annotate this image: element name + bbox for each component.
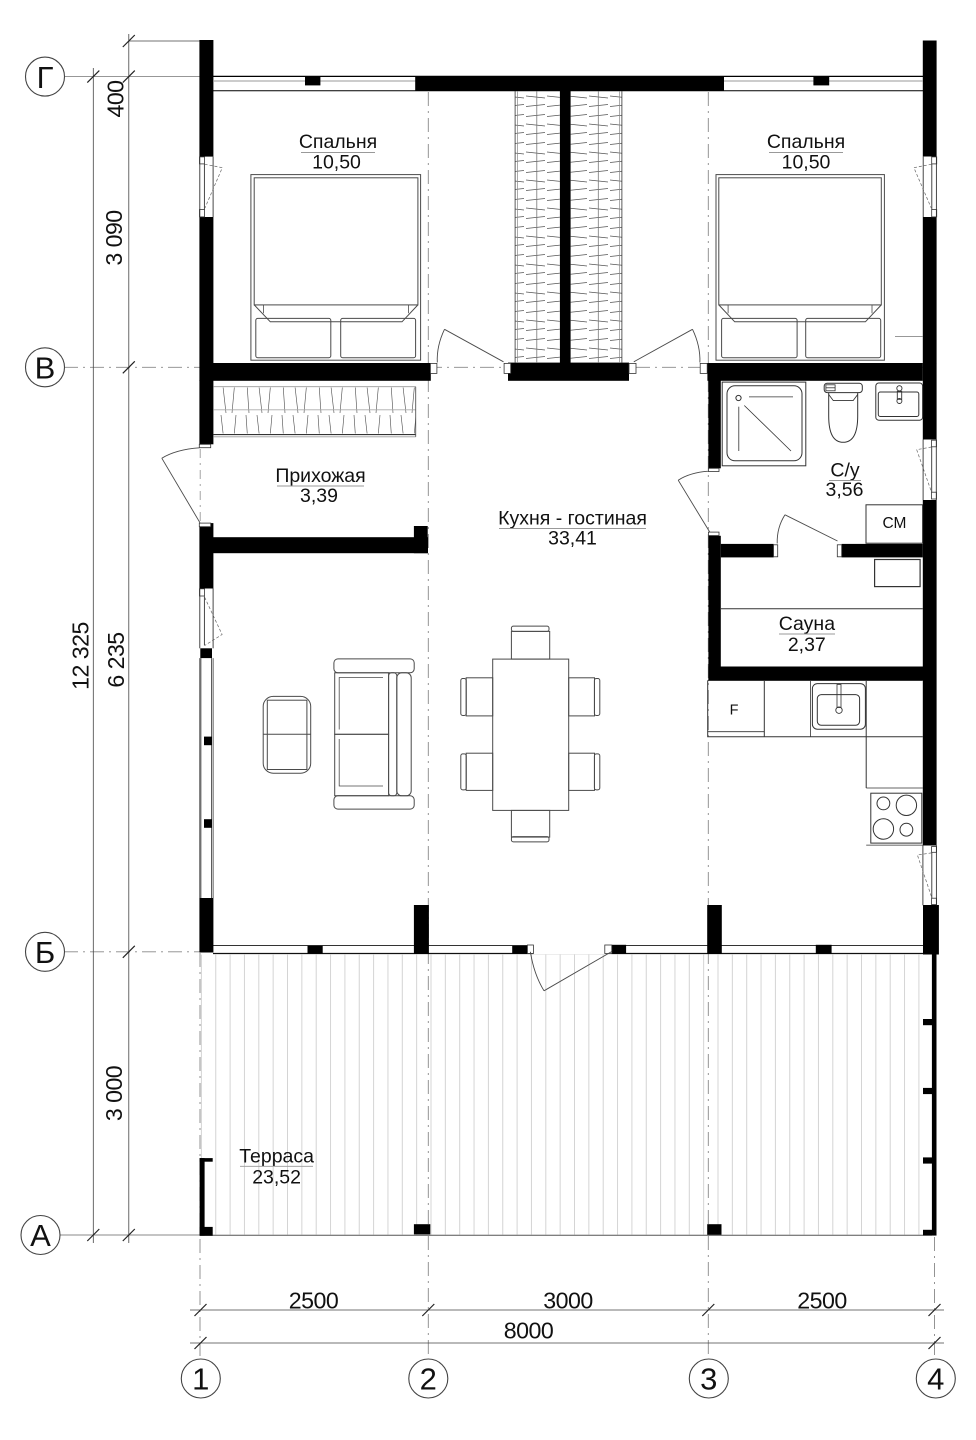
svg-text:2500: 2500: [797, 1288, 846, 1314]
svg-text:4: 4: [927, 1362, 944, 1397]
svg-text:3,39: 3,39: [300, 485, 338, 507]
svg-text:10,50: 10,50: [782, 151, 831, 173]
svg-text:3 000: 3 000: [101, 1066, 127, 1121]
svg-text:3: 3: [700, 1362, 717, 1397]
svg-text:СМ: СМ: [883, 515, 907, 532]
svg-text:В: В: [35, 351, 56, 386]
svg-text:Прихожая: Прихожая: [275, 465, 365, 487]
svg-text:Кухня - гостиная: Кухня - гостиная: [498, 508, 647, 530]
svg-text:2,37: 2,37: [788, 634, 826, 656]
svg-text:Г: Г: [37, 60, 54, 95]
svg-text:400: 400: [103, 80, 129, 117]
svg-text:Сауна: Сауна: [779, 613, 835, 635]
svg-text:Терраса: Терраса: [239, 1145, 314, 1167]
svg-text:33,41: 33,41: [548, 528, 597, 550]
svg-text:8000: 8000: [504, 1318, 553, 1344]
svg-text:3000: 3000: [543, 1288, 592, 1314]
svg-text:12 325: 12 325: [68, 622, 94, 690]
svg-text:23,52: 23,52: [252, 1167, 301, 1189]
svg-text:Спальня: Спальня: [767, 131, 845, 153]
svg-text:F: F: [730, 703, 739, 719]
svg-text:Спальня: Спальня: [299, 131, 377, 153]
svg-text:3 090: 3 090: [101, 210, 127, 265]
svg-text:6 235: 6 235: [103, 632, 129, 687]
svg-text:3,56: 3,56: [826, 479, 864, 501]
svg-text:А: А: [30, 1218, 51, 1253]
svg-text:1: 1: [192, 1362, 209, 1397]
svg-text:Б: Б: [35, 935, 55, 970]
svg-text:10,50: 10,50: [312, 151, 361, 173]
svg-text:2500: 2500: [289, 1288, 338, 1314]
svg-text:2: 2: [420, 1362, 437, 1397]
